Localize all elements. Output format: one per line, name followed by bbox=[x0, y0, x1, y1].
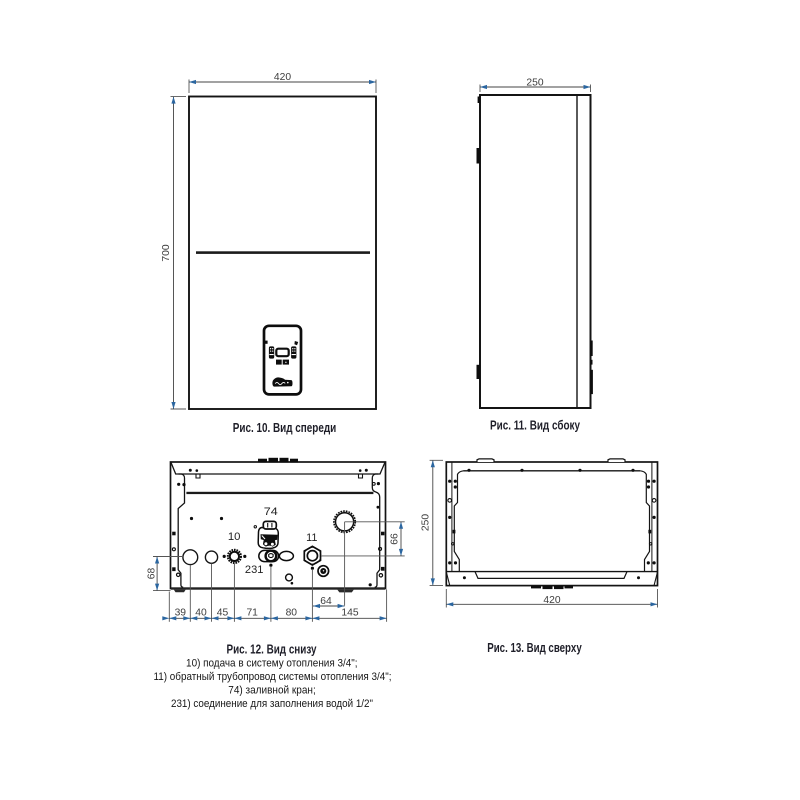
svg-text:10: 10 bbox=[228, 531, 241, 543]
svg-text:68: 68 bbox=[147, 568, 158, 580]
svg-text:11) обратный трубопровод систе: 11) обратный трубопровод системы отоплен… bbox=[154, 671, 392, 683]
svg-text:80: 80 bbox=[286, 607, 298, 618]
svg-text:66: 66 bbox=[390, 533, 401, 545]
svg-text:Рис. 11. Вид сбоку: Рис. 11. Вид сбоку bbox=[490, 418, 580, 433]
svg-text:74) заливной кран;: 74) заливной кран; bbox=[228, 685, 316, 697]
svg-text:231: 231 bbox=[245, 564, 264, 576]
svg-text:40: 40 bbox=[195, 607, 207, 618]
svg-text:71: 71 bbox=[246, 607, 258, 618]
svg-text:Рис. 10. Вид спереди: Рис. 10. Вид спереди bbox=[233, 420, 337, 435]
svg-text:11: 11 bbox=[306, 532, 317, 544]
svg-text:45: 45 bbox=[217, 607, 229, 618]
svg-text:74: 74 bbox=[264, 506, 278, 518]
svg-text:420: 420 bbox=[274, 72, 291, 83]
svg-text:250: 250 bbox=[420, 514, 431, 531]
svg-text:145: 145 bbox=[341, 607, 358, 618]
svg-text:10) подача в систему отопления: 10) подача в систему отопления 3/4"; bbox=[186, 658, 358, 670]
svg-text:231) соединение для заполнения: 231) соединение для заполнения водой 1/2… bbox=[171, 698, 373, 710]
svg-text:Рис. 12. Вид снизу: Рис. 12. Вид снизу bbox=[227, 642, 317, 657]
svg-text:250: 250 bbox=[526, 78, 543, 89]
svg-text:700: 700 bbox=[161, 244, 172, 261]
svg-text:39: 39 bbox=[175, 607, 187, 618]
svg-text:Рис. 13. Вид сверху: Рис. 13. Вид сверху bbox=[487, 640, 582, 655]
svg-text:64: 64 bbox=[320, 596, 332, 607]
svg-text:420: 420 bbox=[543, 595, 560, 606]
